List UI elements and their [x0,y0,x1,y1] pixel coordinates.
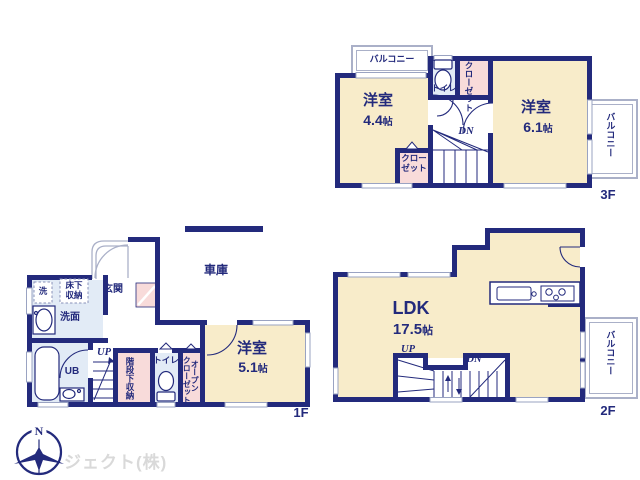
label-balcony-3f-top: バルコニー [370,54,415,64]
label-floor-3f: 3F [600,188,615,203]
label-closet-3f-top: クローゼット [463,61,474,90]
label-room-1f-name: 洋室 [237,340,267,357]
label-entrance: 玄関 [103,284,123,296]
label-open-closet-line1: オープン [190,360,199,392]
floor2-group [333,228,637,402]
label-room1-3f-size: 4.4帖 [363,112,392,129]
label-floor-2f: 2F [600,404,615,419]
company-watermark: ジェクト(株) [64,448,167,473]
label-laundry: 洗 [39,287,48,297]
label-dn-3f: DN [458,126,473,138]
label-toilet-1f: トイレ [153,356,179,366]
kitchen-counter [490,282,580,304]
floor-plan-graphic [0,0,640,480]
entrance-step [136,283,157,307]
label-room2-3f-name: 洋室 [521,99,551,116]
label-open-closet-line2: クローゼット [182,356,191,404]
washstand-icon [33,306,55,334]
label-underfloor-storage: 床下収納 [65,281,82,301]
compass-north-label: N [35,425,44,439]
label-balcony-2f-right: バルコニー [605,330,615,375]
label-balcony-3f-right: バルコニー [605,112,615,157]
label-closet-3f-bottom: クローゼット [401,154,427,174]
label-room2-3f-size: 6.1帖 [523,119,552,136]
label-unit-bath: UB [65,366,79,378]
label-dn-2f: DN [466,354,481,366]
floor-plan-page: バルコニー 洋室 4.4帖 トイレ クローゼット クローゼット DN 洋室 6.… [0,0,640,480]
label-washroom: 洗面 [60,312,80,324]
label-ldk-size: 17.5帖 [393,321,433,338]
label-room1-3f-name: 洋室 [363,92,393,109]
garage-front-bar [185,226,263,232]
compass-needle [14,447,64,471]
toilet-icon-1f [157,372,175,402]
entrance-porch [92,241,155,279]
label-toilet-3f: トイレ [431,84,457,94]
label-up-2f: UP [401,344,415,356]
label-up-1f: UP [97,347,111,359]
label-under-stair-storage: 階段下収納 [124,357,135,387]
bathtub-icon [35,347,59,400]
label-garage: 車庫 [204,264,228,278]
label-room-1f-size: 5.1帖 [238,359,267,376]
bath-sink-icon [60,388,84,401]
label-floor-1f: 1F [293,406,308,421]
label-ldk-name: LDK [393,298,430,319]
